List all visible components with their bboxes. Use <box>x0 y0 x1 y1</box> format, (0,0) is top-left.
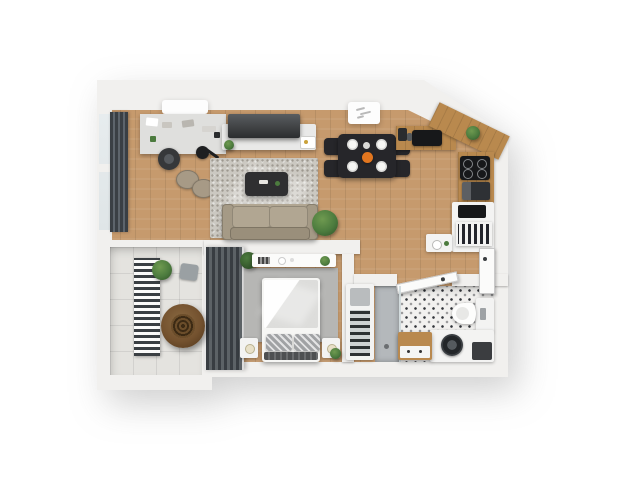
sideboard-decor <box>182 119 195 128</box>
pillow <box>294 334 320 351</box>
counter-niche <box>472 342 492 360</box>
sideboard-decor <box>146 117 159 126</box>
shoe-cabinet <box>346 284 374 360</box>
lounge-chair-cushion <box>164 154 174 164</box>
console-plant <box>224 140 234 150</box>
slatted-window-wall-bedroom-balcony <box>204 247 244 370</box>
wall-hung-toilet <box>452 303 476 324</box>
egg-chair-cushion <box>171 314 195 338</box>
faucet <box>407 133 412 141</box>
sofa <box>222 204 318 240</box>
books <box>258 257 270 264</box>
shoe-shelves <box>350 310 370 356</box>
candle <box>290 258 294 262</box>
burner <box>463 169 473 179</box>
table-plant <box>275 181 280 186</box>
cabinet-knob <box>419 350 422 353</box>
table-lamp <box>245 344 255 354</box>
small-plant <box>150 136 156 142</box>
plate <box>376 139 387 150</box>
floor-plan-render <box>0 0 640 480</box>
sofa-seat-cushion <box>269 206 308 228</box>
ceiling-light-panel-living <box>162 100 208 114</box>
table-decor <box>259 180 268 184</box>
coffee-table <box>245 172 288 196</box>
sofa-backrest <box>230 227 310 240</box>
sofa-seat-cushion <box>232 206 271 228</box>
door-handle <box>441 277 446 282</box>
door-handle <box>483 257 487 261</box>
plate <box>347 139 358 150</box>
wall-shelf <box>252 254 336 267</box>
duvet <box>264 280 318 328</box>
balcony-plant <box>152 260 172 280</box>
wooden-cabinet <box>398 332 432 360</box>
burner <box>463 159 473 169</box>
mug <box>432 240 442 250</box>
cabinet-open-compartment <box>458 205 486 218</box>
vase <box>278 257 286 265</box>
burner <box>477 159 487 169</box>
hanging-egg-chair <box>161 304 205 348</box>
sideboard-decor <box>214 132 220 138</box>
potted-plant <box>312 210 338 236</box>
entrance-door <box>479 248 495 294</box>
serving-bowl <box>362 152 373 163</box>
pillow <box>266 334 292 351</box>
sideboard-decor <box>162 122 172 128</box>
lamp-marking <box>357 115 364 119</box>
tray-item <box>304 140 308 144</box>
washing-machine <box>441 334 463 356</box>
coffee-machine <box>462 182 490 200</box>
tv <box>228 114 300 138</box>
ceiling-lamp-dining <box>348 102 380 124</box>
living-room-window-glass <box>99 114 110 230</box>
kitchen-sink <box>412 130 442 146</box>
side-dish <box>363 142 370 149</box>
sideboard <box>140 114 226 154</box>
cooktop <box>460 156 490 180</box>
nightstand <box>240 338 258 358</box>
bed-runner <box>264 352 318 360</box>
window-curtains <box>110 112 128 232</box>
plate <box>376 161 387 172</box>
console-tray <box>300 136 316 149</box>
balcony-side-table <box>179 263 199 281</box>
record-shelf <box>456 222 492 246</box>
plate <box>347 161 358 172</box>
lounge-chair <box>158 148 180 170</box>
counter-item <box>398 128 407 141</box>
flush-plate <box>480 308 486 320</box>
cabinet-front <box>400 346 430 358</box>
counter-plant <box>466 126 480 140</box>
burner <box>477 169 487 179</box>
walk-in-shower <box>375 286 399 362</box>
lamp-marking <box>356 107 365 111</box>
window-frame-divider <box>99 164 110 172</box>
cabinet-knob <box>407 350 410 353</box>
shower-drain <box>384 344 389 349</box>
small-plant <box>444 241 449 246</box>
cabinet-top-compartment <box>350 288 370 306</box>
toilet-bowl-inner <box>456 307 469 320</box>
bedroom-plant-small <box>330 348 341 359</box>
shelf-plant <box>320 256 330 266</box>
